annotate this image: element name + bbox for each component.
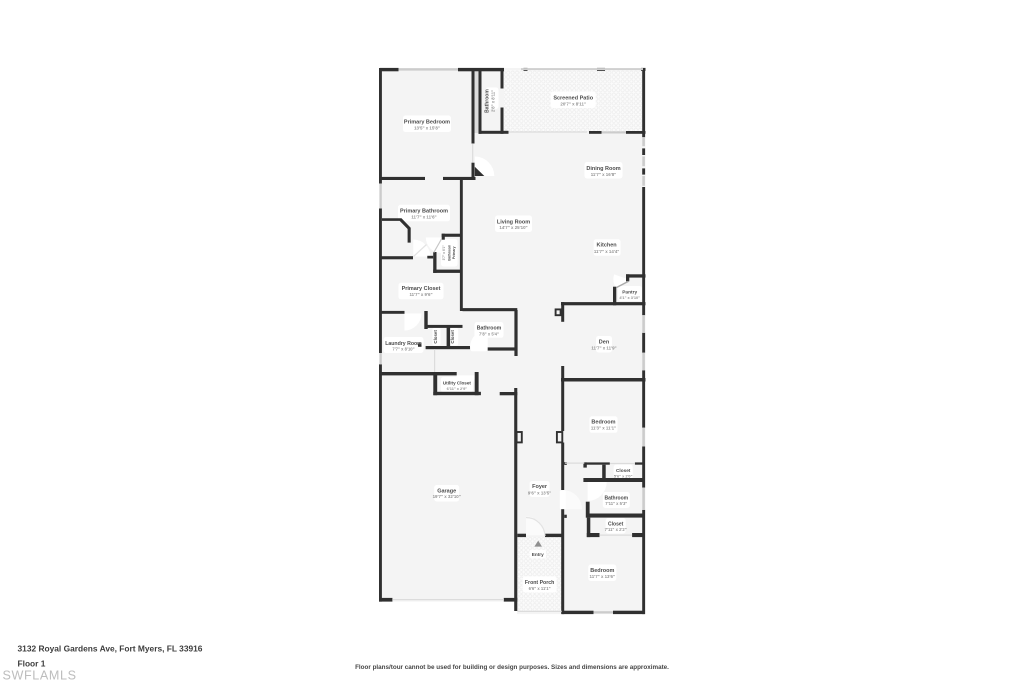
- svg-text:Bathroom: Bathroom: [484, 89, 490, 113]
- svg-text:6'11" x 2'9": 6'11" x 2'9": [447, 386, 468, 391]
- svg-text:Bedroom: Bedroom: [591, 420, 615, 426]
- svg-text:11'7" x 11'9": 11'7" x 11'9": [591, 346, 616, 351]
- svg-text:11'7" x 11'6": 11'7" x 11'6": [411, 215, 436, 220]
- svg-text:Closet: Closet: [433, 330, 438, 344]
- svg-text:7'11" x 5'3": 7'11" x 5'3": [605, 501, 627, 506]
- svg-text:Bathroom: Bathroom: [448, 245, 452, 261]
- svg-text:Entry: Entry: [532, 552, 544, 557]
- svg-text:11'3" x 11'1": 11'3" x 11'1": [591, 426, 616, 431]
- svg-text:Dining Room: Dining Room: [586, 166, 620, 172]
- svg-text:11'7" x 14'4": 11'7" x 14'4": [594, 249, 620, 254]
- svg-text:11'7" x 16'8": 11'7" x 16'8": [591, 172, 617, 177]
- svg-text:Primary: Primary: [452, 246, 456, 259]
- svg-text:Kitchen: Kitchen: [597, 243, 618, 249]
- svg-text:Utility Closet: Utility Closet: [443, 381, 472, 386]
- svg-text:6'6" x 11'1": 6'6" x 11'1": [529, 586, 551, 591]
- svg-text:7'7" x 8'10": 7'7" x 8'10": [392, 347, 414, 352]
- svg-text:11'7" x 13'6": 11'7" x 13'6": [590, 574, 616, 579]
- svg-text:5'6" x 2'0": 5'6" x 2'0": [614, 473, 633, 478]
- svg-text:14'7" x 25'10": 14'7" x 25'10": [499, 225, 527, 230]
- svg-text:Screened Patio: Screened Patio: [553, 95, 593, 101]
- svg-text:Closet: Closet: [616, 468, 631, 473]
- svg-text:7'11" x 2'2": 7'11" x 2'2": [605, 527, 627, 532]
- svg-text:Closet: Closet: [450, 330, 455, 344]
- svg-text:4'1" x 3'10": 4'1" x 3'10": [619, 295, 640, 300]
- svg-text:Foyer: Foyer: [532, 484, 548, 490]
- svg-text:3132 Royal Gardens Ave, Fort M: 3132 Royal Gardens Ave, Fort Myers, FL 3…: [18, 644, 203, 654]
- svg-text:Floor plans/tour cannot be use: Floor plans/tour cannot be used for buil…: [355, 664, 669, 671]
- svg-text:SWFLAMLS: SWFLAMLS: [3, 669, 77, 682]
- svg-text:7'8" x 5'4": 7'8" x 5'4": [479, 332, 499, 337]
- svg-text:9'6" x 13'5": 9'6" x 13'5": [528, 490, 551, 495]
- svg-text:13'5" x 15'8": 13'5" x 15'8": [414, 125, 440, 130]
- svg-text:3'7" x 6'1": 3'7" x 6'1": [442, 245, 446, 261]
- svg-text:Floor 1: Floor 1: [18, 659, 46, 669]
- svg-text:2'8" x 8'11": 2'8" x 8'11": [491, 90, 496, 112]
- svg-text:20'7" x 8'11": 20'7" x 8'11": [560, 102, 586, 107]
- svg-text:19'7" x 32'10": 19'7" x 32'10": [433, 494, 461, 499]
- svg-text:11'7" x 9'6": 11'7" x 9'6": [409, 292, 432, 297]
